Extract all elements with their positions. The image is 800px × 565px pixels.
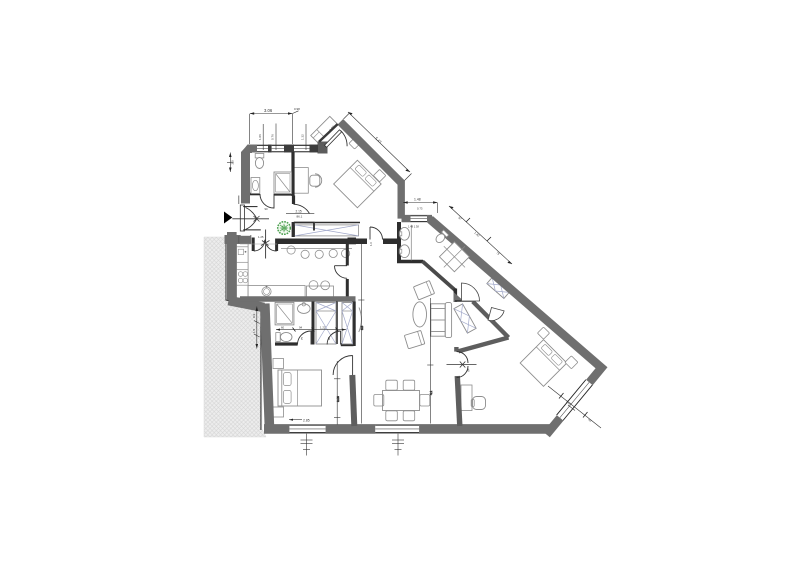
- svg-text:90: 90: [265, 207, 269, 211]
- svg-text:97: 97: [457, 216, 462, 221]
- svg-text:1.40: 1.40: [473, 231, 480, 238]
- svg-text:80: 80: [327, 336, 331, 340]
- svg-text:1.48: 1.48: [414, 198, 421, 202]
- svg-text:1.48 1.38: 1.48 1.38: [408, 225, 419, 229]
- svg-text:1.5: 1.5: [252, 328, 256, 333]
- svg-text:3.08: 3.08: [336, 396, 340, 402]
- svg-text:1.06: 1.06: [258, 134, 262, 140]
- svg-text:0.98: 0.98: [294, 107, 300, 111]
- svg-text:5.43: 5.43: [374, 136, 382, 144]
- svg-text:1.0: 1.0: [369, 242, 373, 246]
- svg-text:75: 75: [300, 336, 304, 340]
- svg-text:75: 75: [495, 251, 500, 256]
- svg-text:60: 60: [281, 325, 285, 329]
- svg-text:5.5: 5.5: [360, 325, 364, 330]
- svg-text:4.1: 4.1: [429, 390, 433, 395]
- svg-text:86.1: 86.1: [297, 215, 303, 219]
- svg-text:0.73: 0.73: [417, 207, 423, 211]
- svg-text:1.22: 1.22: [320, 325, 326, 329]
- svg-text:2.85: 2.85: [303, 419, 310, 423]
- svg-text:3.06: 3.06: [264, 108, 273, 113]
- svg-text:40: 40: [587, 418, 592, 423]
- svg-text:94: 94: [299, 325, 303, 329]
- svg-text:1.32: 1.32: [301, 134, 305, 140]
- svg-text:0.9: 0.9: [252, 313, 256, 318]
- svg-text:0.76: 0.76: [271, 134, 275, 140]
- svg-text:1.25: 1.25: [258, 235, 264, 239]
- svg-text:2.15: 2.15: [296, 209, 302, 213]
- svg-text:2.0: 2.0: [231, 160, 235, 165]
